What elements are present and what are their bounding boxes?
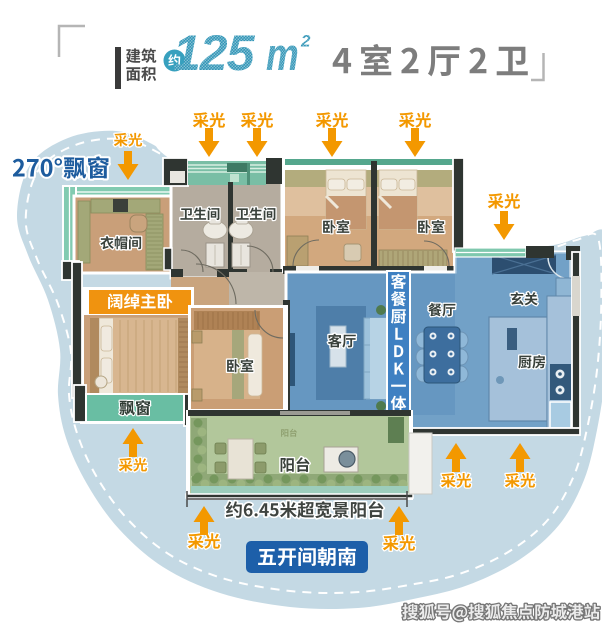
svg-text:2: 2 (300, 31, 311, 50)
svg-text:125: 125 (173, 25, 256, 81)
svg-text:m: m (266, 29, 299, 80)
